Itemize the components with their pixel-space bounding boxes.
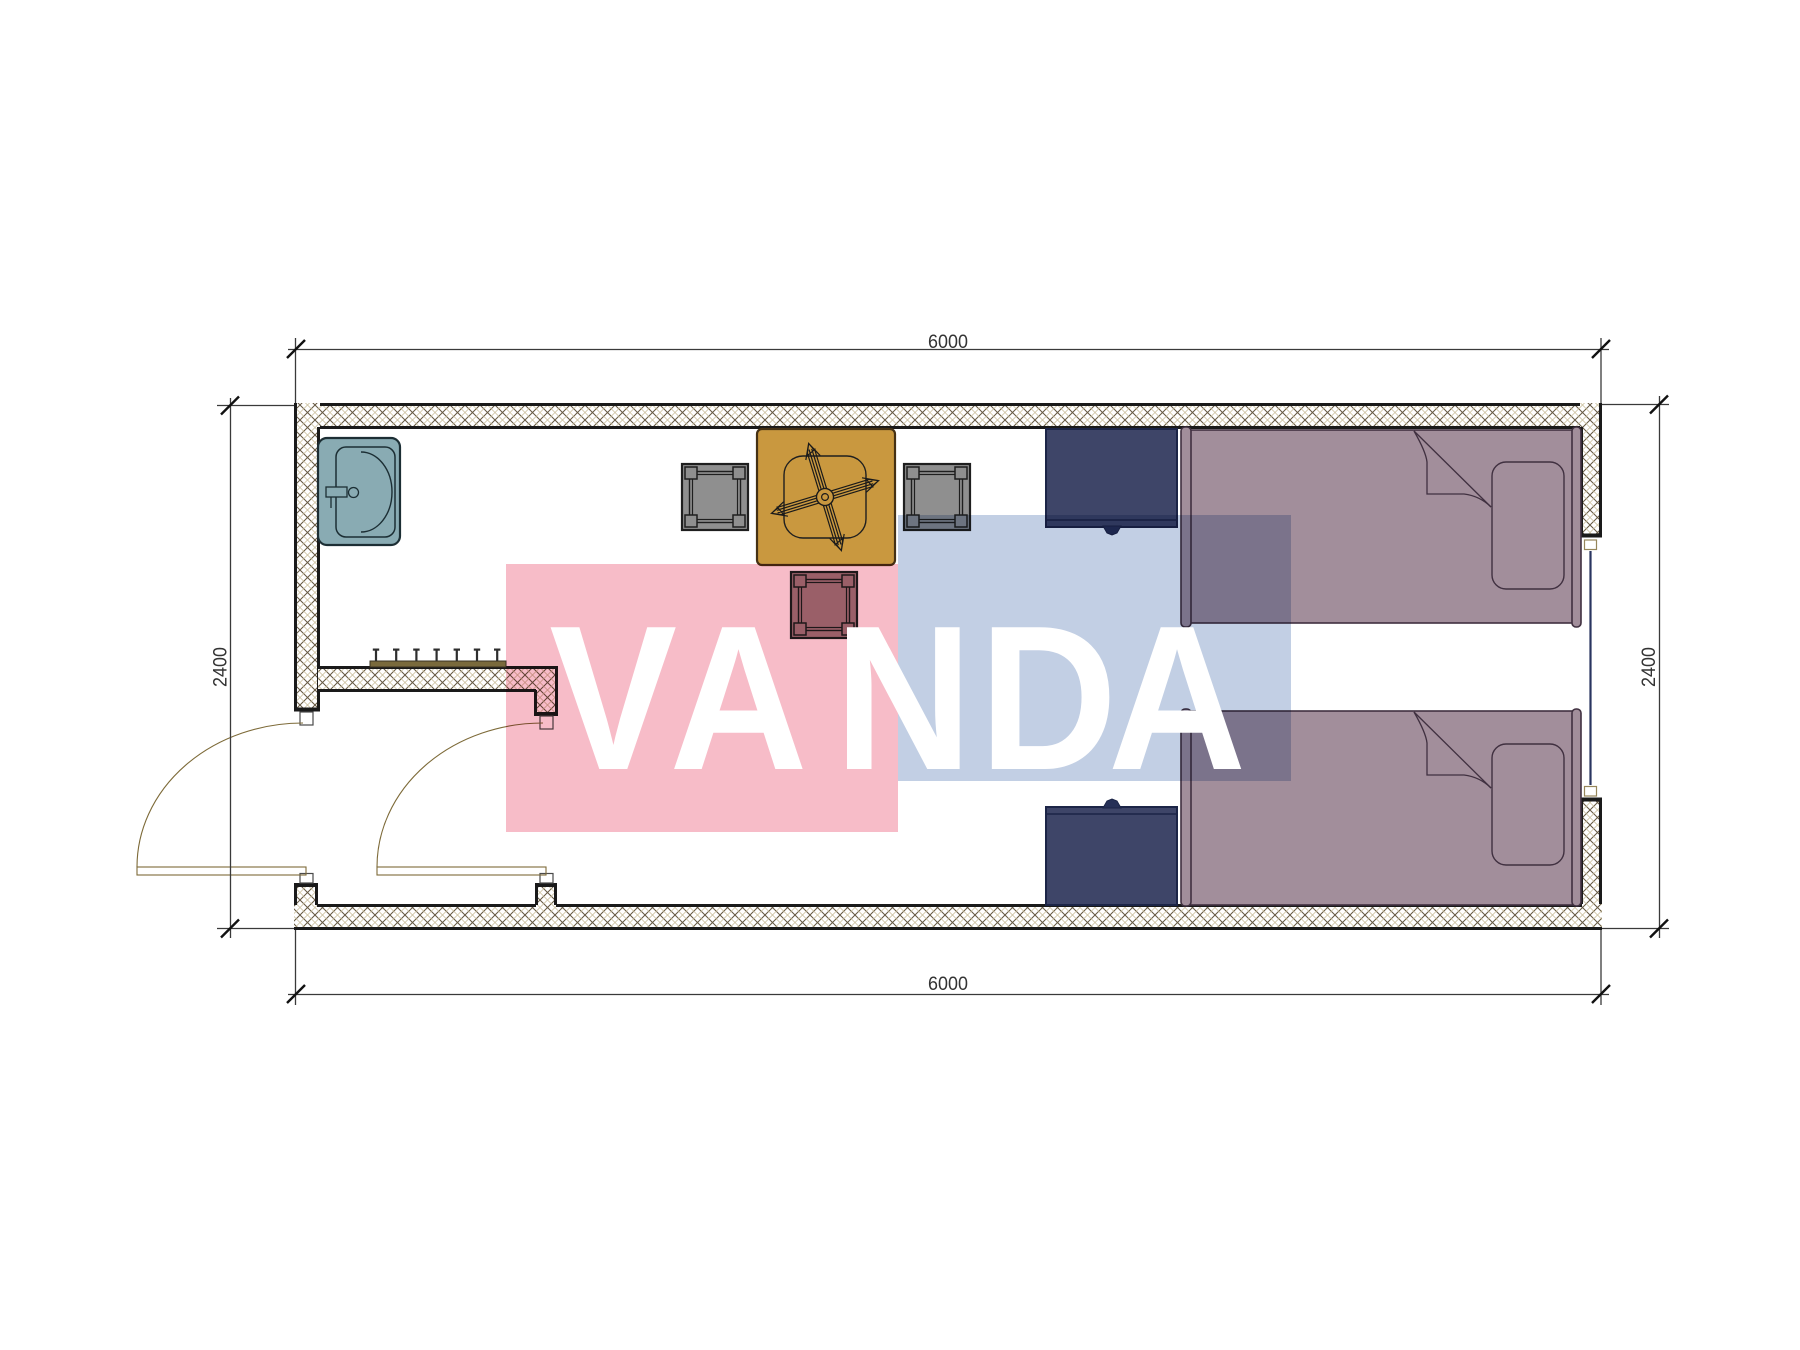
svg-text:2400: 2400 (209, 647, 231, 687)
svg-text:6000: 6000 (928, 972, 968, 994)
svg-text:6000: 6000 (928, 330, 968, 352)
svg-text:2400: 2400 (1637, 647, 1659, 687)
svg-text:VANDA: VANDA (549, 584, 1252, 814)
